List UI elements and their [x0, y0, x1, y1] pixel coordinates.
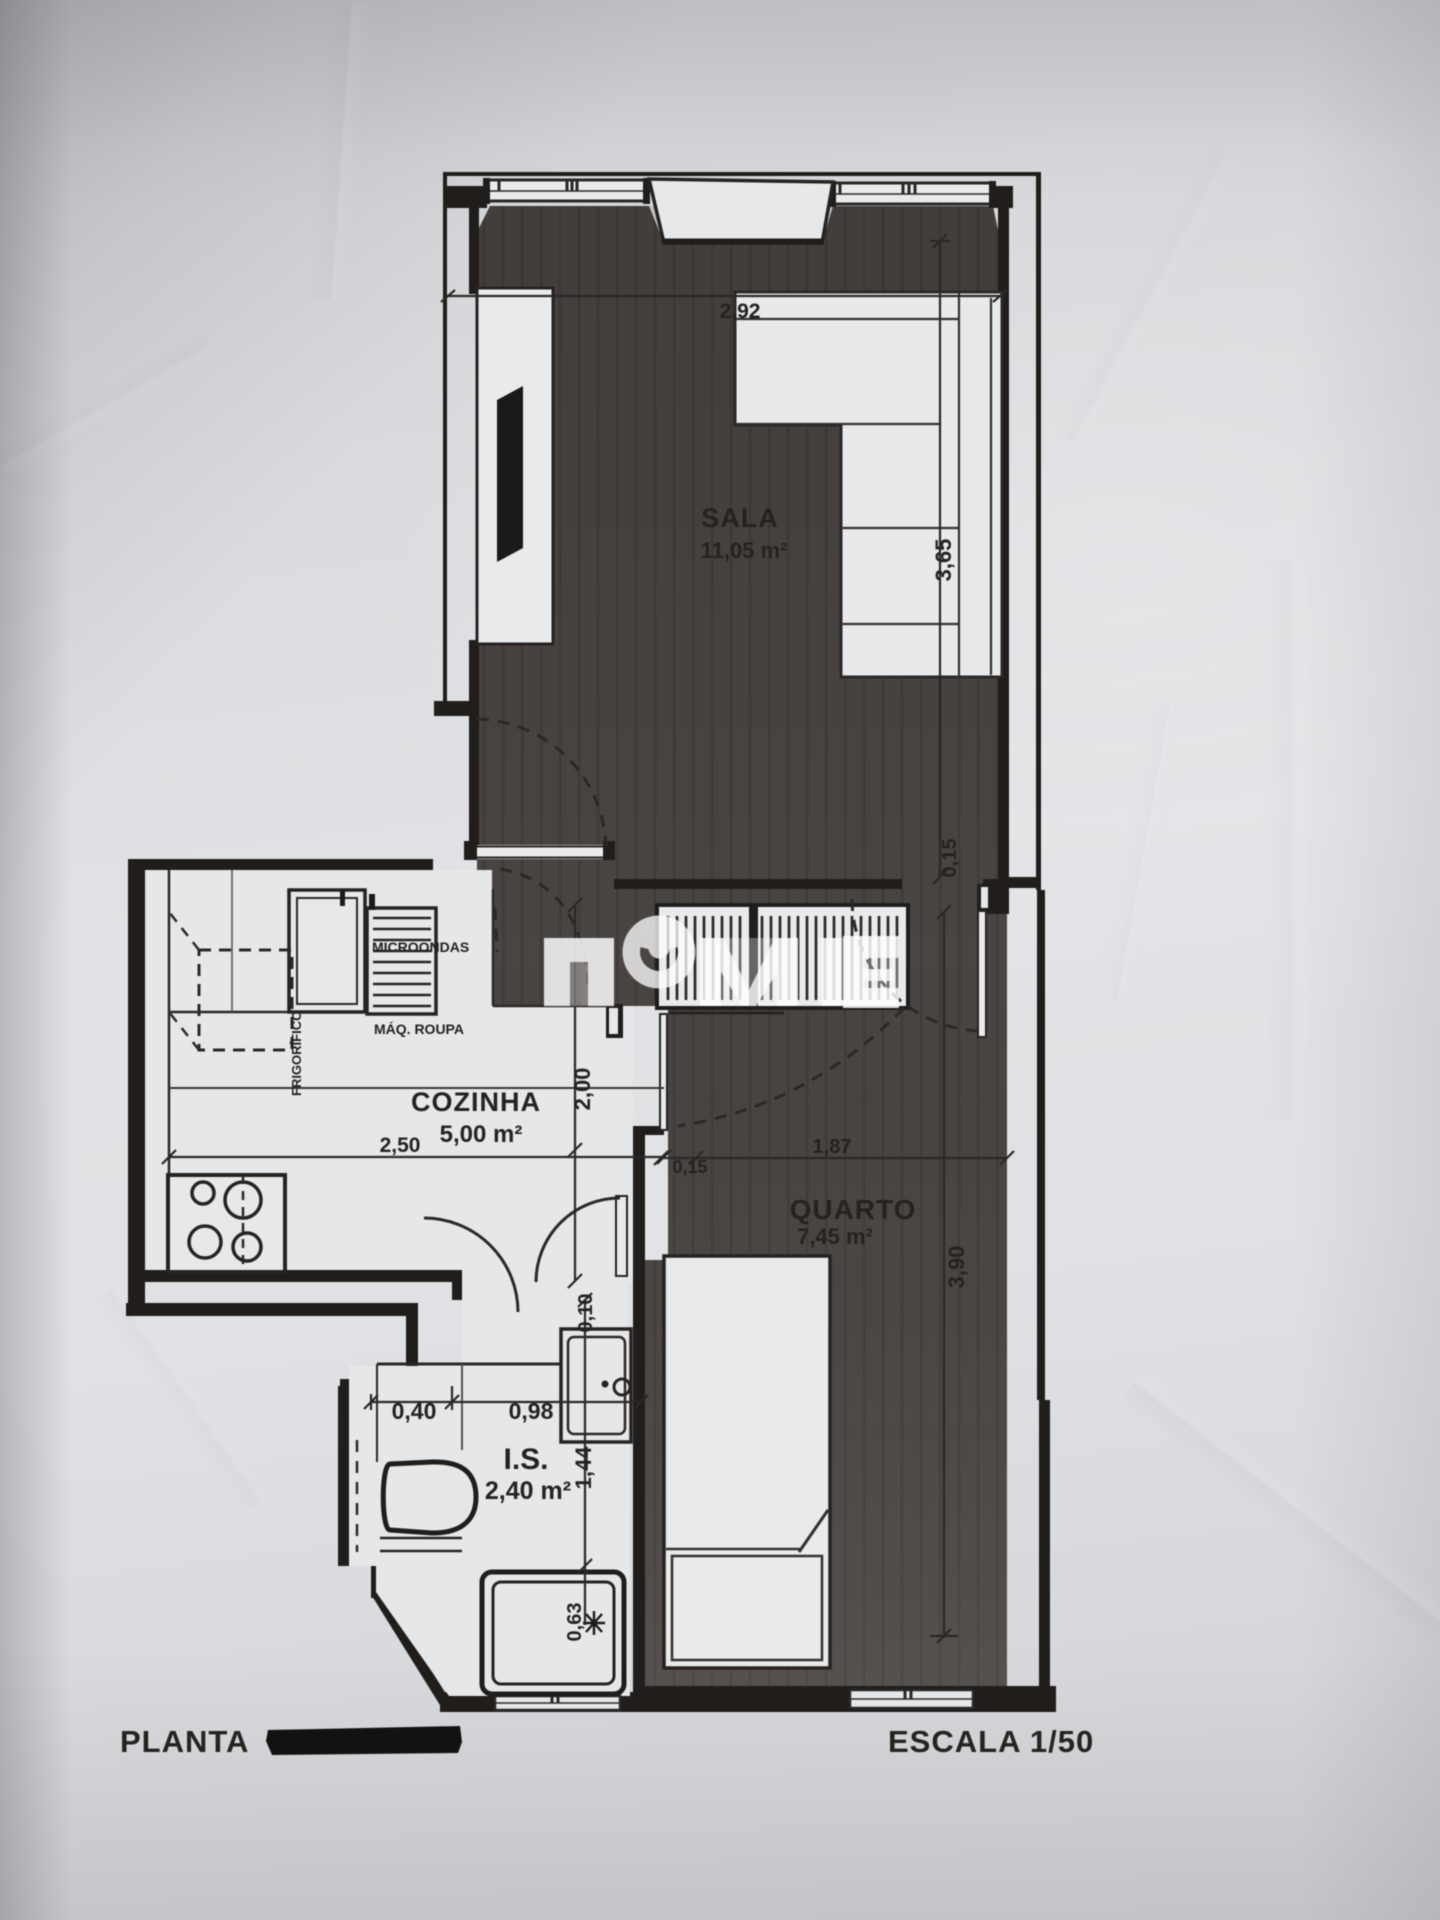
svg-text:7,45 m²: 7,45 m² — [797, 1224, 873, 1249]
svg-text:SALA: SALA — [701, 503, 779, 533]
svg-text:11,05 m²: 11,05 m² — [701, 538, 788, 563]
svg-text:3,65: 3,65 — [931, 539, 956, 582]
svg-text:PLANTA: PLANTA — [120, 1724, 249, 1759]
svg-text:2,40 m²: 2,40 m² — [485, 1477, 571, 1505]
svg-text:0,10: 0,10 — [575, 1294, 597, 1333]
svg-text:0,98: 0,98 — [509, 1398, 554, 1424]
svg-text:MÁQ. ROUPA: MÁQ. ROUPA — [374, 1021, 464, 1037]
svg-text:2,50: 2,50 — [380, 1134, 421, 1157]
svg-text:0,63: 0,63 — [564, 1603, 586, 1642]
svg-text:COZINHA: COZINHA — [411, 1087, 541, 1117]
svg-text:QUARTO: QUARTO — [790, 1194, 917, 1225]
svg-text:0,15: 0,15 — [672, 1157, 707, 1177]
svg-text:0,15: 0,15 — [939, 839, 961, 878]
svg-text:1,44: 1,44 — [571, 1446, 596, 1490]
svg-text:MICROONDAS: MICROONDAS — [372, 939, 469, 955]
svg-text:FRIGORÍFICO: FRIGORÍFICO — [289, 1011, 304, 1096]
svg-text:0,40: 0,40 — [392, 1398, 437, 1424]
svg-text:2,00: 2,00 — [570, 1068, 595, 1111]
svg-text:ESCALA 1/50: ESCALA 1/50 — [888, 1724, 1094, 1759]
svg-text:I.S.: I.S. — [503, 1443, 548, 1476]
svg-text:1,87: 1,87 — [813, 1136, 852, 1158]
svg-text:3,90: 3,90 — [944, 1246, 969, 1289]
svg-text:2,92: 2,92 — [720, 300, 761, 323]
svg-text:5,00 m²: 5,00 m² — [440, 1121, 523, 1148]
